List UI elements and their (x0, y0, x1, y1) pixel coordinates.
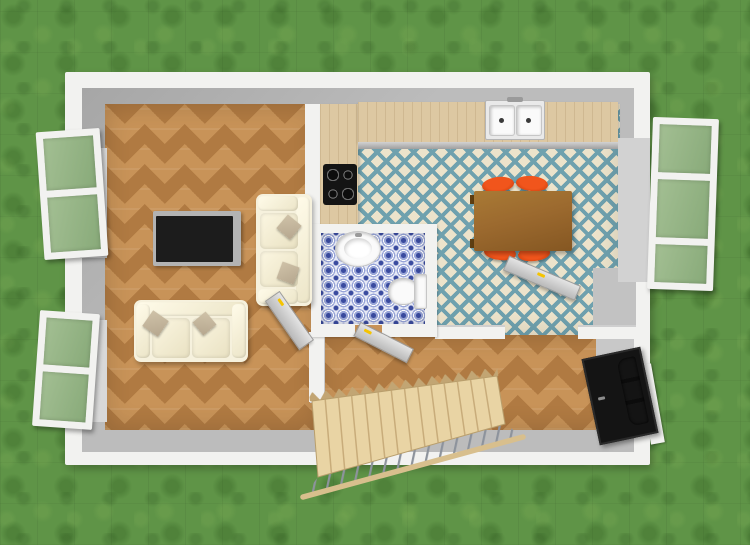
front-door-glass (616, 356, 649, 426)
basin-bowl (344, 238, 372, 259)
basin-faucet-icon (355, 233, 362, 237)
tv[interactable] (156, 216, 233, 262)
window-east-sill (618, 138, 650, 282)
window-glass (43, 135, 97, 190)
window-glass (656, 179, 710, 239)
door-handle (364, 329, 372, 335)
window-glass (39, 371, 88, 422)
door-handle (277, 298, 284, 306)
sofa-armrest (136, 304, 150, 358)
window-east[interactable] (647, 117, 719, 291)
sink-drain-right (526, 118, 531, 123)
front-door-handle (598, 396, 605, 400)
hall-kitchen-wall-east (578, 325, 636, 339)
washbasin[interactable] (335, 231, 381, 267)
sofa-east[interactable] (256, 194, 312, 306)
kitchen-sink[interactable] (485, 100, 545, 140)
counter-front-edge (358, 142, 618, 149)
staircase[interactable] (280, 365, 560, 515)
bathroom-walls (311, 224, 437, 337)
window-west-north[interactable] (36, 128, 109, 260)
window-glass (43, 318, 92, 368)
sofa-backrest (296, 197, 310, 303)
window-glass (658, 124, 712, 174)
sofa-south[interactable] (134, 300, 248, 362)
cooktop[interactable] (323, 164, 357, 205)
window-glass (47, 194, 101, 252)
door-handle (537, 272, 546, 278)
dining-table[interactable] (474, 191, 572, 251)
faucet-icon (507, 97, 523, 102)
toilet-tank (414, 274, 427, 309)
sofa-armrest (232, 304, 246, 358)
sink-drain-left (499, 118, 504, 123)
window-west-south[interactable] (32, 310, 100, 430)
hall-kitchen-wall-west (435, 325, 505, 339)
sofa-armrest (258, 196, 298, 211)
floor-plan-scene (0, 0, 750, 545)
window-glass (654, 244, 707, 284)
